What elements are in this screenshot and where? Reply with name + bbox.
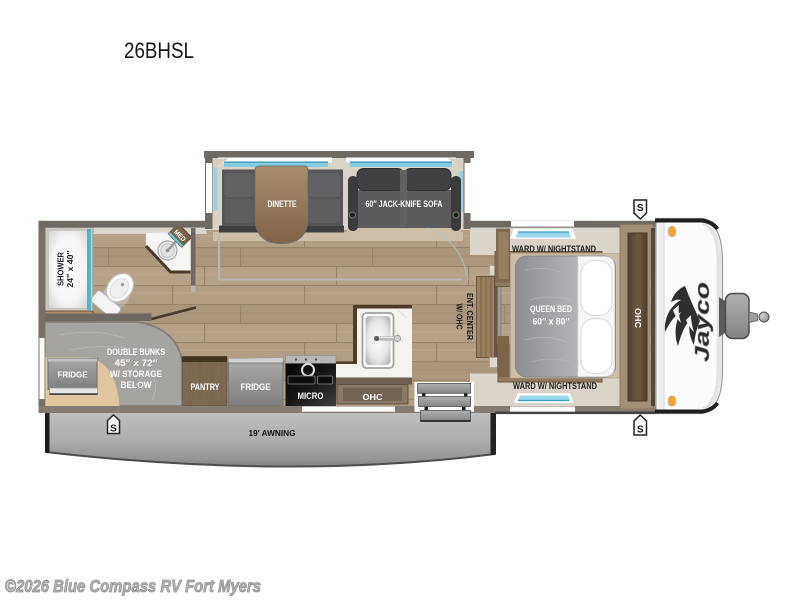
svg-text:©2026 Blue Compass RV Fort Mye: ©2026 Blue Compass RV Fort Myers — [5, 576, 261, 596]
svg-text:MICRO: MICRO — [298, 391, 324, 401]
svg-text:60″ JACK-KNIFE SOFA: 60″ JACK-KNIFE SOFA — [366, 199, 443, 209]
svg-text:60″ x 80″: 60″ x 80″ — [533, 317, 571, 327]
svg-text:45″ x 72″: 45″ x 72″ — [115, 358, 159, 368]
svg-text:PANTRY: PANTRY — [191, 382, 220, 392]
svg-text:OHC: OHC — [363, 392, 383, 402]
svg-text:19′ AWNING: 19′ AWNING — [249, 428, 296, 438]
svg-text:BELOW: BELOW — [121, 380, 153, 390]
svg-text:S: S — [110, 424, 117, 435]
svg-text:OHC: OHC — [633, 308, 642, 328]
svg-text:S: S — [637, 425, 644, 436]
svg-text:WARD W/ NIGHTSTAND: WARD W/ NIGHTSTAND — [512, 244, 596, 254]
svg-text:W/ OHC: W/ OHC — [455, 304, 464, 330]
svg-text:DOUBLE BUNKS: DOUBLE BUNKS — [107, 347, 165, 357]
svg-text:SHOWER: SHOWER — [57, 252, 66, 286]
svg-text:24″ x 40″: 24″ x 40″ — [66, 250, 75, 287]
svg-text:WARD W/ NIGHTSTAND: WARD W/ NIGHTSTAND — [513, 381, 597, 391]
svg-text:FRIDGE: FRIDGE — [241, 382, 271, 392]
svg-text:DINETTE: DINETTE — [268, 199, 297, 209]
svg-text:S: S — [637, 203, 644, 214]
svg-text:FRIDGE: FRIDGE — [58, 371, 89, 380]
svg-text:ENT. CENTER: ENT. CENTER — [465, 293, 474, 340]
svg-text:W/ STORAGE: W/ STORAGE — [110, 369, 162, 379]
svg-text:26BHSL: 26BHSL — [124, 38, 194, 63]
svg-text:QUEEN BED: QUEEN BED — [530, 304, 572, 314]
